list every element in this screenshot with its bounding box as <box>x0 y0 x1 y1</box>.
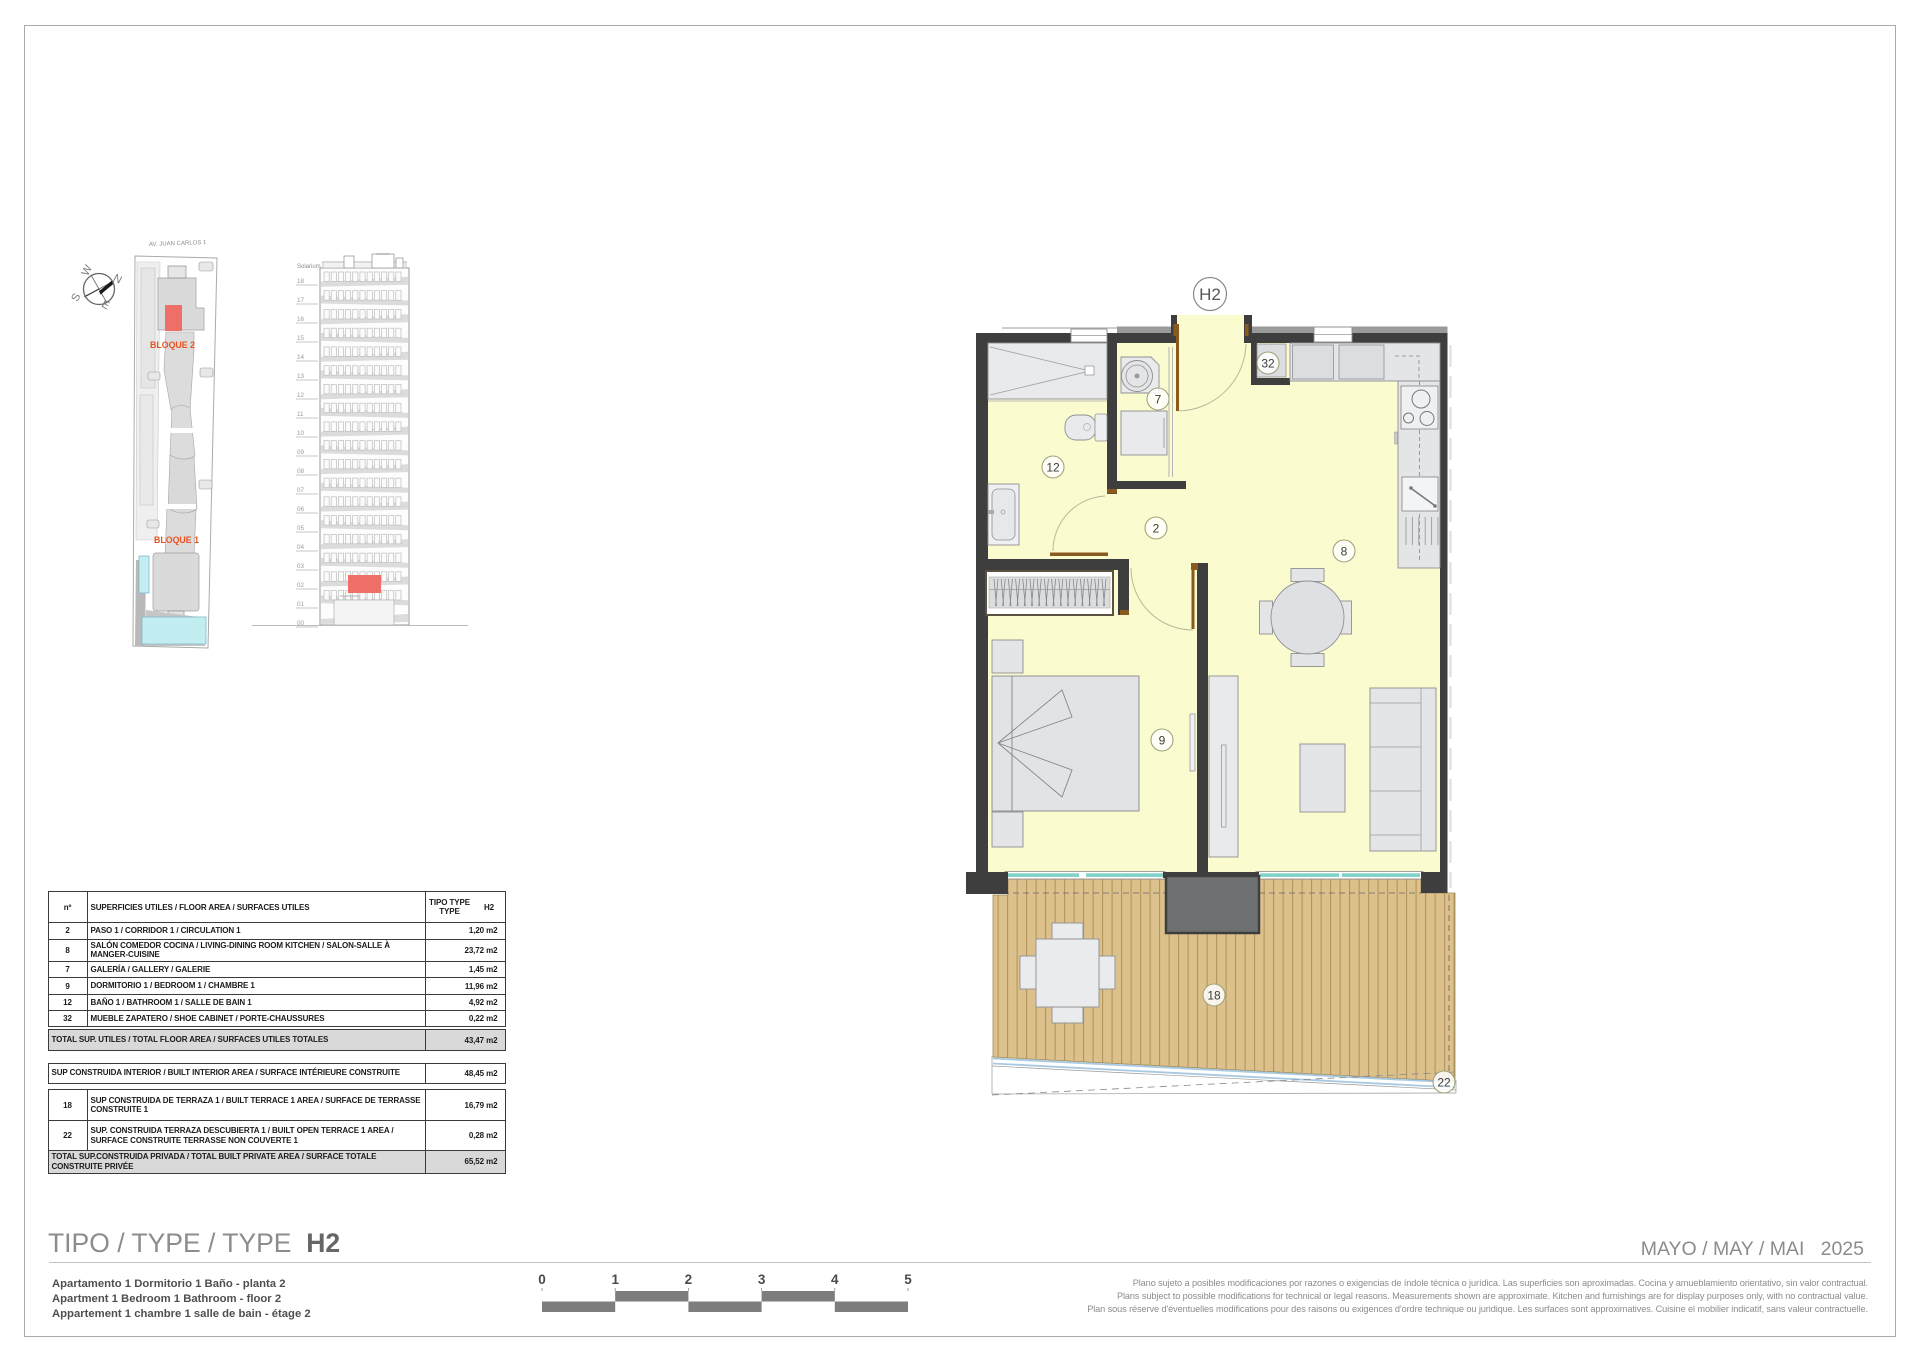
svg-text:12: 12 <box>1046 460 1060 474</box>
svg-text:BLOQUE 1: BLOQUE 1 <box>154 535 199 545</box>
svg-text:5: 5 <box>904 1272 912 1287</box>
svg-text:11: 11 <box>297 411 304 418</box>
svg-text:15: 15 <box>297 335 305 342</box>
svg-text:08: 08 <box>297 468 305 475</box>
svg-text:03: 03 <box>297 563 305 570</box>
svg-text:E: E <box>99 298 111 312</box>
svg-text:BLOQUE 2: BLOQUE 2 <box>150 340 195 350</box>
svg-text:05: 05 <box>297 525 305 532</box>
svg-text:22: 22 <box>1437 1075 1451 1089</box>
svg-text:32: 32 <box>1261 356 1275 370</box>
svg-text:18: 18 <box>297 278 305 285</box>
svg-text:14: 14 <box>297 354 305 361</box>
svg-text:04: 04 <box>297 544 305 551</box>
svg-text:3: 3 <box>758 1272 766 1287</box>
svg-text:17: 17 <box>297 297 305 304</box>
svg-text:S: S <box>69 292 83 304</box>
svg-text:02: 02 <box>297 582 305 589</box>
svg-text:2: 2 <box>685 1272 693 1287</box>
svg-text:16: 16 <box>297 316 305 323</box>
svg-text:H2: H2 <box>1199 285 1221 304</box>
svg-text:07: 07 <box>297 487 305 494</box>
svg-text:7: 7 <box>1155 392 1162 406</box>
svg-text:1: 1 <box>611 1272 619 1287</box>
svg-text:06: 06 <box>297 506 305 513</box>
svg-text:0: 0 <box>538 1272 546 1287</box>
svg-text:2: 2 <box>1153 521 1160 535</box>
svg-text:W: W <box>80 263 96 278</box>
svg-text:10: 10 <box>297 430 305 437</box>
svg-text:4: 4 <box>831 1272 839 1287</box>
svg-text:09: 09 <box>297 449 305 456</box>
svg-text:AV. JUAN CARLOS 1: AV. JUAN CARLOS 1 <box>149 240 207 248</box>
svg-text:N: N <box>111 272 124 286</box>
svg-text:13: 13 <box>297 373 305 380</box>
svg-text:Solarium: Solarium <box>297 264 321 270</box>
svg-text:01: 01 <box>297 601 305 608</box>
svg-text:18: 18 <box>1207 988 1221 1002</box>
svg-text:00: 00 <box>297 620 305 627</box>
svg-text:8: 8 <box>1341 544 1348 558</box>
svg-text:9: 9 <box>1159 733 1166 747</box>
svg-text:12: 12 <box>297 392 305 399</box>
